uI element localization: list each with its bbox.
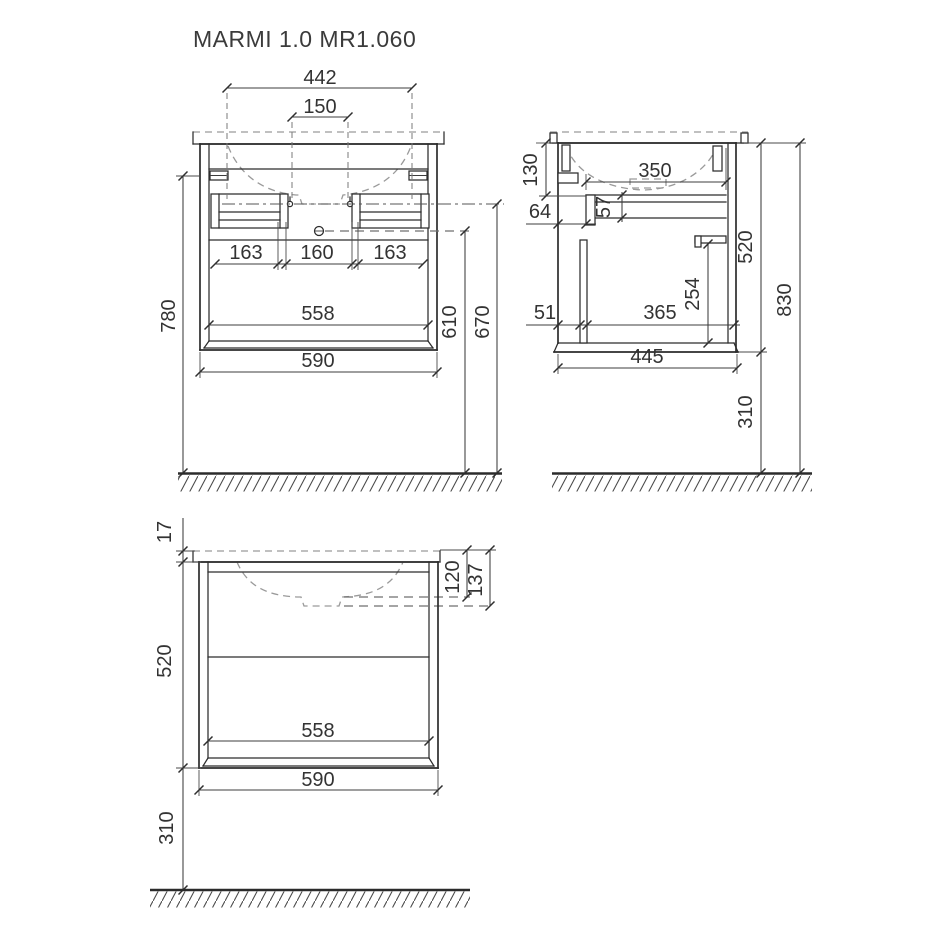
- front2-countertop: [193, 551, 440, 562]
- front-drawer-slide-right: [352, 194, 429, 228]
- front2-floor: [150, 890, 470, 908]
- dim-side-350: 350: [638, 160, 671, 182]
- dim-bottom-310: 310: [156, 811, 178, 844]
- dim-side-254: 254: [682, 277, 704, 310]
- dim-front-160: 160: [300, 242, 333, 264]
- dim-side-445: 445: [630, 346, 663, 368]
- dim-side-310: 310: [735, 395, 757, 428]
- dim-side-365: 365: [643, 302, 676, 324]
- side-view: 130 350 64 57 51 365 254: [520, 132, 812, 492]
- dim-side-64: 64: [529, 201, 551, 223]
- front-view: 442 150 163 160 163 558: [158, 67, 504, 492]
- dim-bottom-558: 558: [301, 720, 334, 742]
- dim-bottom-137: 137: [465, 563, 487, 596]
- dim-side-57: 57: [593, 196, 615, 218]
- side-dimensions: 130 350 64 57 51 365 254: [520, 139, 806, 478]
- front-view-2: 17 520 310 120 137 558 590: [150, 518, 496, 908]
- technical-drawing-page: MARMI 1.0 MR1.060: [0, 0, 950, 950]
- dim-front-150: 150: [303, 96, 336, 118]
- side-wall-bracket-lower: [558, 173, 578, 183]
- dim-bottom-17: 17: [154, 521, 176, 543]
- drawing-title: MARMI 1.0 MR1.060: [193, 26, 416, 52]
- front2-dimensions: 17 520 310 120 137 558 590: [154, 518, 496, 895]
- front-floor: [178, 474, 502, 492]
- dim-front-610: 610: [439, 305, 461, 338]
- front-countertop: [193, 132, 444, 144]
- front-fixing-pins: [287, 197, 352, 207]
- dim-front-442: 442: [303, 67, 336, 89]
- dim-front-780: 780: [158, 299, 180, 332]
- dim-front-163-right: 163: [373, 242, 406, 264]
- side-floor: [552, 474, 812, 492]
- side-countertop: [550, 132, 748, 143]
- dim-side-830: 830: [774, 283, 796, 316]
- drawing-svg: MARMI 1.0 MR1.060: [0, 0, 950, 950]
- front-drawer-slide-left: [211, 194, 288, 228]
- dim-bottom-590: 590: [301, 769, 334, 791]
- dim-bottom-520: 520: [154, 644, 176, 677]
- side-front-bracket: [713, 146, 722, 171]
- dim-front-558: 558: [301, 303, 334, 325]
- dim-front-163-left: 163: [229, 242, 262, 264]
- dim-front-590: 590: [301, 350, 334, 372]
- dim-bottom-120: 120: [442, 560, 464, 593]
- dim-side-51: 51: [534, 302, 556, 324]
- dim-side-520: 520: [735, 230, 757, 263]
- front-drain-hole: [315, 227, 324, 236]
- side-wall-bracket-upper: [562, 145, 570, 171]
- dim-front-670: 670: [472, 305, 494, 338]
- front-dimensions: 442 150 163 160 163 558: [158, 67, 504, 478]
- dim-side-130: 130: [520, 153, 542, 186]
